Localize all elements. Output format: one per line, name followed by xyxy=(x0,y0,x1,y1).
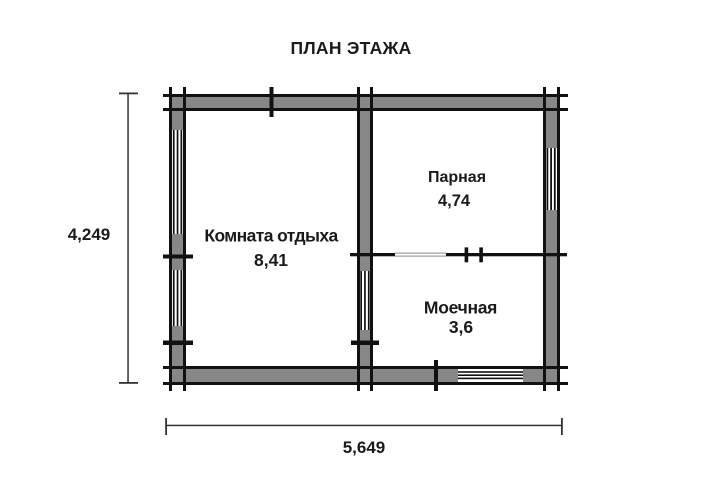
svg-text:8,41: 8,41 xyxy=(254,250,288,270)
svg-text:Комната отдыха: Комната отдыха xyxy=(204,226,338,246)
svg-text:Моечная: Моечная xyxy=(424,298,497,318)
svg-text:Парная: Парная xyxy=(428,169,486,186)
svg-text:3,6: 3,6 xyxy=(449,317,474,337)
svg-text:5,649: 5,649 xyxy=(343,438,386,457)
svg-text:4,74: 4,74 xyxy=(438,192,471,210)
svg-text:4,249: 4,249 xyxy=(68,225,111,244)
svg-text:ПЛАН ЭТАЖА: ПЛАН ЭТАЖА xyxy=(290,38,411,58)
